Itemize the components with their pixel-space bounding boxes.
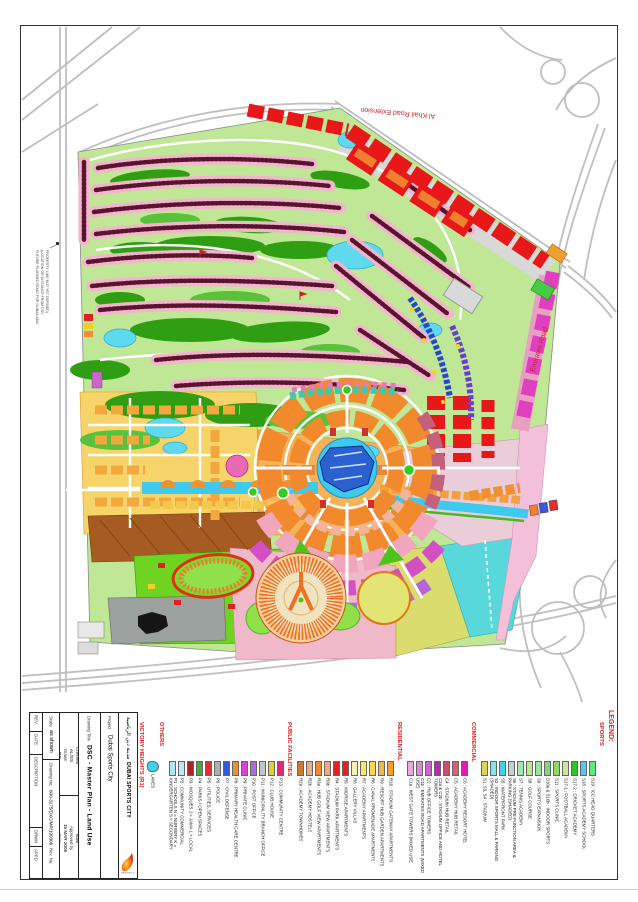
drawing-title-label: Drawing Title — [87, 716, 92, 741]
legend-item: C1a : WEST GATE TOWERS (MIXED USE) — [406, 761, 415, 874]
legend-swatch — [333, 761, 341, 776]
legend-item: S17-2 : CRICKET ACADEMY — [570, 761, 579, 874]
legend-swatch — [297, 761, 305, 776]
legend-swatch — [553, 761, 561, 776]
legend-item-label: C1a : WEST GATE TOWERS (MIXED USE) — [408, 778, 412, 864]
legend-swatch — [196, 761, 204, 776]
legend-item: P13 : COMMUNITY CENTRE — [276, 761, 285, 874]
legend-swatch — [544, 761, 552, 776]
legend-item-label: R3a : HUB GOLF VIEW APARTMENTS — [316, 778, 320, 855]
legend-item-label: S8 : GOLF COURSE — [527, 778, 531, 819]
legend-item-label: P10 : POST OFFICE — [251, 778, 255, 819]
drawing-title-value: DSC - Master Plan - Land Use — [86, 745, 93, 846]
legend-item-label: S1, S3, S4 : STADIUM — [482, 778, 486, 822]
legend-swatch — [535, 761, 543, 776]
legend-swatch — [508, 761, 516, 776]
legend-swatch — [407, 761, 415, 776]
legend-item: R8 : CANAL PROMENADE APARTMENTS — [368, 761, 377, 866]
legend-item: S10a & S10b : INDOOR SPORTS — [543, 761, 552, 874]
legend-item: S6 : STADIUM PRE-FUNCTION AREA & PARKING… — [507, 761, 516, 874]
legend-swatch — [223, 761, 231, 776]
legend-item: R3b : STADIUM VIEW APARTMENTS — [323, 761, 332, 866]
legend-section-others: OTHERSLAKES — [148, 707, 164, 788]
drawing-no-label: Drawing No. — [49, 763, 54, 787]
main-stadium — [256, 553, 346, 643]
legend-item-label: S7 : TENNIS ACADEMY — [518, 778, 522, 826]
legend-item: S11 : SPORTS CLINIC — [552, 761, 561, 874]
project-column: Project Dubai Sports City — [101, 713, 119, 878]
legend-swatch — [562, 761, 570, 776]
legend-swatch — [499, 761, 507, 776]
legend-swatch — [387, 761, 395, 776]
revision-header-cell: DATE — [30, 732, 42, 755]
svg-text:(LOCATION OR DISTANCE FROM DSC: (LOCATION OR DISTANCE FROM DSC — [40, 250, 44, 315]
legend-item-label: C2 : HUB OFFICE TOWERS — [426, 778, 430, 834]
legend-section-header: VICTORY HEIGHTS (R1) — [138, 722, 144, 840]
legend-item: S19 : ICC HEAD QUARTERS — [588, 761, 597, 874]
legend-section-sports: SPORTSS19 : ICC HEAD QUARTERSS18 : SPORT… — [480, 707, 604, 874]
legend-item-label: R9 : RESORT HUB GARDEN APARTMENTS — [379, 778, 383, 866]
legend-item-label: R2a : ACADEMY TOWNHOMES — [298, 778, 302, 842]
svg-text:PROPERTY LINE NOT YET DEFINED): PROPERTY LINE NOT YET DEFINED) — [45, 250, 49, 313]
drawing-title-column: Drawing Title DSC - Master Plan - Land U… — [79, 713, 101, 878]
legend-section-header: RESIDENTIAL — [396, 722, 402, 866]
logo-text: DUBAI SPORTS CITY — [121, 872, 135, 875]
legend-item: S17-1 : FOOTBALL ACADEMY — [561, 761, 570, 874]
legend-item-label: P13 : COMMUNITY CENTRE — [278, 778, 282, 836]
legend-item: P6 : POLICE — [213, 761, 222, 874]
revision-header-cell: DRWN — [30, 828, 42, 847]
legend-item-label: C1b : EMIRATES ROAD APARTMENTS (MIXED US… — [415, 778, 424, 874]
revision-header-cell: REV. — [30, 713, 42, 732]
legend-item-label: C5 : ACADEMY HUB RETAIL — [453, 778, 457, 835]
legend-swatch — [425, 761, 433, 776]
legend-item: R2b : ACADEMY HOSTELS — [305, 761, 314, 866]
legend-swatch — [490, 761, 498, 776]
legend-item-label: S2 : INDOOR SPORTS MALL & PARKING (SHADE… — [489, 778, 498, 874]
legend-item: S1, S3, S4 : STADIUM — [480, 761, 489, 874]
legend-section-header: SPORTS — [598, 722, 604, 874]
legend-swatch — [169, 761, 177, 776]
legend-item: P10 : POST OFFICE — [249, 761, 258, 874]
legend-swatch — [306, 761, 314, 776]
legend-item: P8 : PRIMARY HEALTH CARE CENTRE — [231, 761, 240, 874]
al-khail-label: Al Khail Road Extension — [360, 106, 436, 120]
legend-item-label: R8 : CANAL PROMENADE APARTMENTS — [370, 778, 374, 862]
legend-item: P12 : CLUB HOUSE — [267, 761, 276, 874]
brand-column: مدينة دبي الرياضية DUBAI SPORTS CITY DUB… — [119, 713, 137, 878]
legend-swatch — [232, 761, 240, 776]
legend-item-label: P4 : PARKS / OPEN SPACES — [197, 778, 201, 836]
legend-item-label: S17-1 : FOOTBALL ACADEMY — [563, 778, 567, 839]
legend-item: R2a : ACADEMY TOWNHOMES — [296, 761, 305, 866]
legend-item-label: P8 : PRIMARY HEALTH CARE CENTRE — [233, 778, 237, 858]
legend-item: R3a : HUB GOLF VIEW APARTMENTS — [314, 761, 323, 866]
legend-item-label: P11 : MUNICIPALITY BRANCH OFFICE — [260, 778, 264, 857]
legend-item-label: P1 : SCHOOLS N = NURSERY K = KINDERGARTE… — [168, 778, 177, 874]
legend-swatch — [241, 761, 249, 776]
revision-header-label: DRWN — [34, 830, 39, 843]
legend-item: S8 : GOLF COURSE — [525, 761, 534, 874]
legend-item: P2 : COMMUNITY COMMERCIAL — [177, 761, 186, 874]
legend-item: LAKES — [148, 761, 157, 788]
revision-table: REV.DATEDESCRIPTIONDRWNAPPD — [30, 713, 43, 878]
legend-swatch — [434, 761, 442, 776]
legend-swatch — [580, 761, 588, 776]
legend-item-label: P7 : CIVIL DEFENSE — [224, 778, 228, 820]
legend-swatch — [526, 761, 534, 776]
drawing-sheet: Al Khail Road Extension Emirates Road FU… — [0, 0, 638, 902]
legend-swatch — [147, 761, 159, 772]
legend-section-header: PUBLIC FACILITIES — [286, 722, 292, 874]
legend-swatch — [259, 761, 267, 776]
svg-text:FUTURE PLANNED ROAD FOR DUBAIL: FUTURE PLANNED ROAD FOR DUBAILAND — [35, 250, 39, 324]
legend-swatch — [268, 761, 276, 776]
legend-item: R6 : GALLERY VILLAS — [350, 761, 359, 866]
drawn-label: Drawn — [63, 749, 68, 761]
legend-swatch — [315, 761, 323, 776]
legend-item: C5 : ACADEMY HUB RETAIL — [451, 761, 460, 874]
legend-swatch — [351, 761, 359, 776]
legend-item-label: S17-2 : CRICKET ACADEMY — [572, 778, 576, 835]
legend-section-public-facilities: PUBLIC FACILITIESP13 : COMMUNITY CENTREP… — [168, 707, 292, 874]
legend-item-label: LAKES — [150, 774, 154, 788]
legend: LEGEND: SPORTSS19 : ICC HEAD QUARTERSS18… — [137, 707, 615, 877]
legend-swatch — [443, 761, 451, 776]
legend-section-commercial: COMMERCIALC6 : ACADEMY RESORT HOTELC5 : … — [406, 707, 476, 874]
legend-item-label: P12 : CLUB HOUSE — [269, 778, 273, 818]
legend-swatch — [205, 761, 213, 776]
legend-item: S7 : TENNIS ACADEMY — [516, 761, 525, 874]
legend-swatch — [369, 761, 377, 776]
legend-item: S5 : WATERFRONT PARK — [498, 761, 507, 874]
legend-item-label: R6 : GALLERY VILLAS — [352, 778, 356, 823]
legend-swatch — [481, 761, 489, 776]
legend-item: R5 : MIDRISE APARTMENTS — [341, 761, 350, 866]
revision-header-cell: DESCRIPTION — [30, 755, 42, 828]
legend-swatch — [571, 761, 579, 776]
legend-item: P5 : UTILITIES, SERVICES — [204, 761, 213, 874]
legend-swatch — [452, 761, 460, 776]
legend-item: P4 : PARKS / OPEN SPACES — [195, 761, 204, 874]
legend-swatch — [342, 761, 350, 776]
fold-line — [0, 889, 638, 890]
revision-header-label: APPD — [34, 849, 39, 861]
legend-item: P9 : PRIVATE CLINIC — [240, 761, 249, 874]
legend-swatch — [277, 761, 285, 776]
legend-swatch — [214, 761, 222, 776]
legend-item-label: R10 : STADIUM GATEWAY APARTMENTS — [388, 778, 392, 862]
legend-swatch — [324, 761, 332, 776]
legend-item: C4 : STADIUM HUB RETAIL — [442, 761, 451, 874]
legend-item-label: R4 : STADIUM PARK APARTMENTS — [334, 778, 338, 850]
legend-item-label: P2 : COMMUNITY COMMERCIAL — [179, 778, 183, 845]
designed-value: RG — [60, 752, 63, 759]
legend-item-label: S10a & S10b : INDOOR SPORTS — [545, 778, 549, 844]
legend-swatch — [378, 761, 386, 776]
legend-item-label: R2b : ACADEMY HOSTELS — [307, 778, 311, 833]
legend-item-label: R3b : STADIUM VIEW APARTMENTS — [325, 778, 329, 852]
legend-item-label: R5 : MIDRISE APARTMENTS — [343, 778, 347, 836]
legend-swatch — [416, 761, 424, 776]
legend-swatch — [589, 761, 597, 776]
legend-title: LEGEND: — [607, 710, 614, 742]
rev-no-label: Rev. No. — [49, 848, 54, 864]
drawing-no-value: 600-3175/DXC/MP/190306 — [49, 790, 54, 845]
legend-item-label: S5 : WATERFRONT PARK — [500, 778, 504, 830]
legend-section-residential: RESIDENTIALR10 : STADIUM GATEWAY APARTME… — [296, 707, 402, 866]
legend-item-label: P5 : UTILITIES, SERVICES — [206, 778, 210, 832]
legend-swatch — [250, 761, 258, 776]
legend-item-label: S11 : SPORTS CLINIC — [554, 778, 558, 823]
legend-item: P3 : MOSQUES J = JAMA L = LOCAL — [186, 761, 195, 874]
date-label: Date — [60, 834, 63, 843]
legend-item: C6 : ACADEMY RESORT HOTEL — [460, 761, 469, 874]
legend-item: R7 : ACADEMY APARTMENTS — [359, 761, 368, 866]
legend-item: C2 : HUB OFFICE TOWERS — [424, 761, 433, 874]
revision-header-label: DATE — [34, 734, 39, 745]
legend-item-label: S19 : ICC HEAD QUARTERS — [590, 778, 594, 836]
revision-header-label: REV. — [34, 715, 39, 725]
project-value: Dubai Sports City — [106, 735, 112, 782]
legend-item-label: C6 : ACADEMY RESORT HOTEL — [462, 778, 466, 844]
legend-item-label: P3 : MOSQUES J = JAMA L = LOCAL — [188, 778, 192, 852]
legend-item-label: S9 : SPORTS EXPANSION — [536, 778, 540, 832]
legend-item: C1b : EMIRATES ROAD APARTMENTS (MIXED US… — [415, 761, 424, 874]
brand-arabic: مدينة دبي الرياضية — [125, 717, 131, 759]
legend-item-label: P9 : PRIVATE CLINIC — [242, 778, 246, 821]
legend-item-label: C4 : STADIUM HUB RETAIL — [444, 778, 448, 833]
legend-item: P11 : MUNICIPALITY BRANCH OFFICE — [258, 761, 267, 874]
legend-swatch — [178, 761, 186, 776]
legend-item-label: S6 : STADIUM PRE-FUNCTION AREA & PARKING… — [507, 778, 516, 874]
approved-label: Approved by — [69, 826, 74, 850]
revision-header-label: DESCRIPTION — [34, 757, 39, 786]
legend-item: R10 : STADIUM GATEWAY APARTMENTS — [386, 761, 395, 866]
legend-swatch — [517, 761, 525, 776]
dsc-logo-flame: DUBAI SPORTS CITY — [121, 852, 135, 874]
left-note: FUTURE PLANNED ROAD FOR DUBAILAND (LOCAT… — [35, 242, 59, 324]
zone-gray — [108, 596, 226, 644]
legend-section-header: COMMERCIAL — [470, 722, 476, 874]
legend-item: S2 : INDOOR SPORTS MALL & PARKING (SHADE… — [489, 761, 498, 874]
master-plan-map: Al Khail Road Extension Emirates Road FU… — [21, 26, 617, 706]
legend-item-label: P6 : POLICE — [215, 778, 219, 803]
signatures-column: Designed RG Drawn AL/SS Checked MS/AM Da… — [60, 713, 79, 878]
legend-section-victory-heights-r1-: VICTORY HEIGHTS (R1)VILLA TYPE ATOWN HOU… — [137, 707, 144, 840]
project-label: Project — [107, 716, 112, 729]
legend-item-label: R7 : ACADEMY APARTMENTS — [361, 778, 365, 839]
title-block: REV.DATEDESCRIPTIONDRWNAPPD Scale as sho… — [29, 712, 138, 879]
legend-item: R4 : STADIUM PARK APARTMENTS — [332, 761, 341, 866]
revision-header-cell: APPD — [30, 847, 42, 865]
drawing-number-column: Scale as shown Drawing No. 600-3175/DXC/… — [43, 713, 59, 878]
legend-item: S9 : SPORTS EXPANSION — [534, 761, 543, 874]
legend-swatch — [461, 761, 469, 776]
drawn-value: AL/SS — [69, 749, 74, 762]
brand-english: DUBAI SPORTS CITY — [125, 762, 131, 818]
date-value: 15 MAR 2006 — [63, 824, 68, 852]
legend-swatch — [360, 761, 368, 776]
legend-item: P7 : CIVIL DEFENSE — [222, 761, 231, 874]
scale-label: Scale — [49, 716, 54, 727]
legend-swatch — [187, 761, 195, 776]
legend-item: P1 : SCHOOLS N = NURSERY K = KINDERGARTE… — [168, 761, 177, 874]
legend-item: S18 : SPORTS ACADEMY SCHOOL — [579, 761, 588, 874]
scale-value: as shown — [48, 730, 54, 753]
legend-item-label: C2a & C2b : STADIUM OFFICE AND HOTEL TOW… — [433, 778, 442, 874]
legend-item: R9 : RESORT HUB GARDEN APARTMENTS — [377, 761, 386, 866]
legend-item: C2a & C2b : STADIUM OFFICE AND HOTEL TOW… — [433, 761, 442, 874]
legend-section-header: OTHERS — [158, 722, 164, 788]
legend-item-label: S18 : SPORTS ACADEMY SCHOOL — [581, 778, 585, 850]
